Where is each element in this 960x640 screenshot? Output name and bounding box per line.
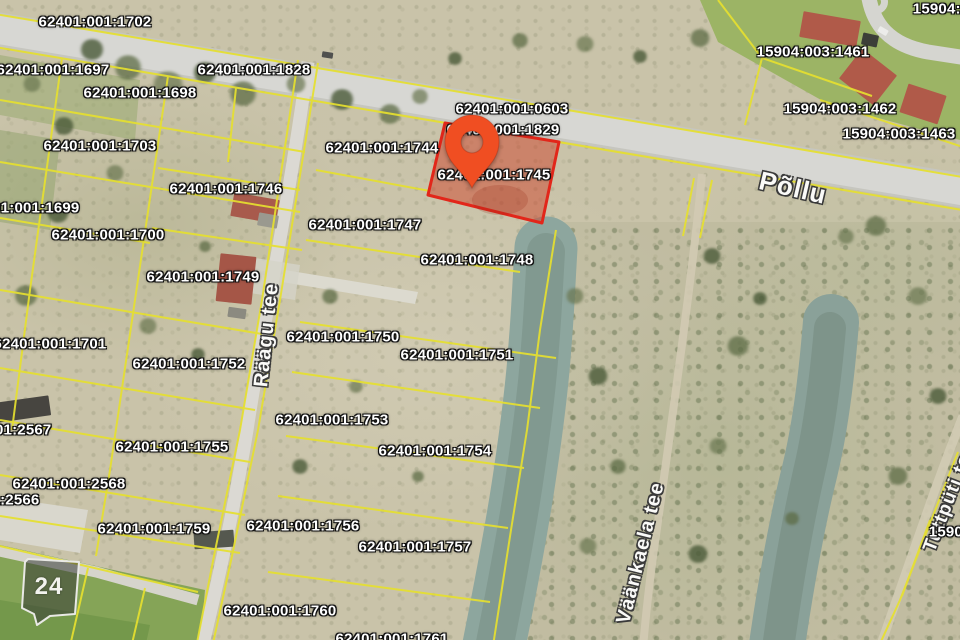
location-pin-icon[interactable]: [445, 115, 499, 188]
map-canvas[interactable]: PõlluRäägu teeVäänkaela teeTuttpüti tee …: [0, 0, 960, 640]
pin-layer: [0, 0, 960, 640]
